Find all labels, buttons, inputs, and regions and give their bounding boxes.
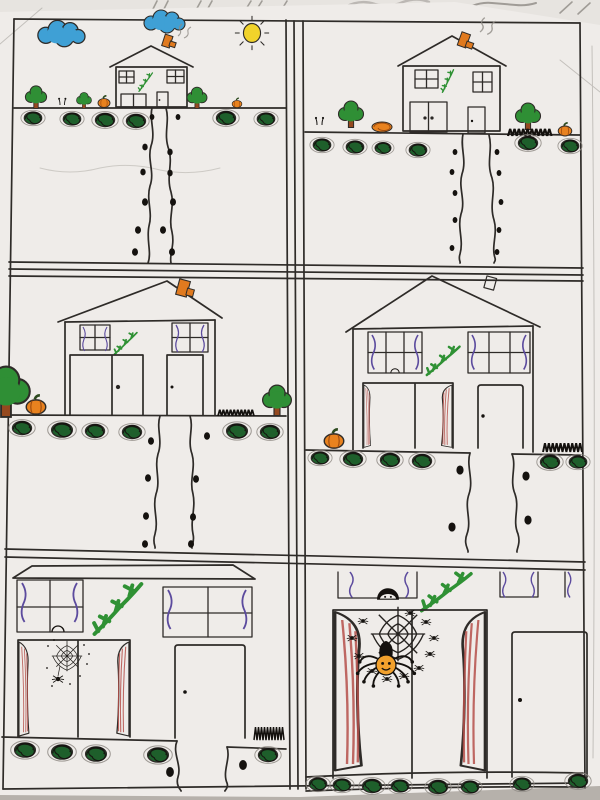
red-curtain: [364, 385, 371, 447]
red-curtain: [19, 642, 29, 736]
red-curtain: [442, 385, 452, 447]
drawing-canvas: [0, 0, 600, 800]
photographed-paper: Photograph of a child's six-panel marker…: [0, 0, 600, 800]
red-curtain: [461, 612, 485, 770]
red-curtain: [117, 642, 129, 736]
main-paper-sheet: [0, 2, 600, 797]
orange-shrub-icon: [372, 122, 392, 132]
